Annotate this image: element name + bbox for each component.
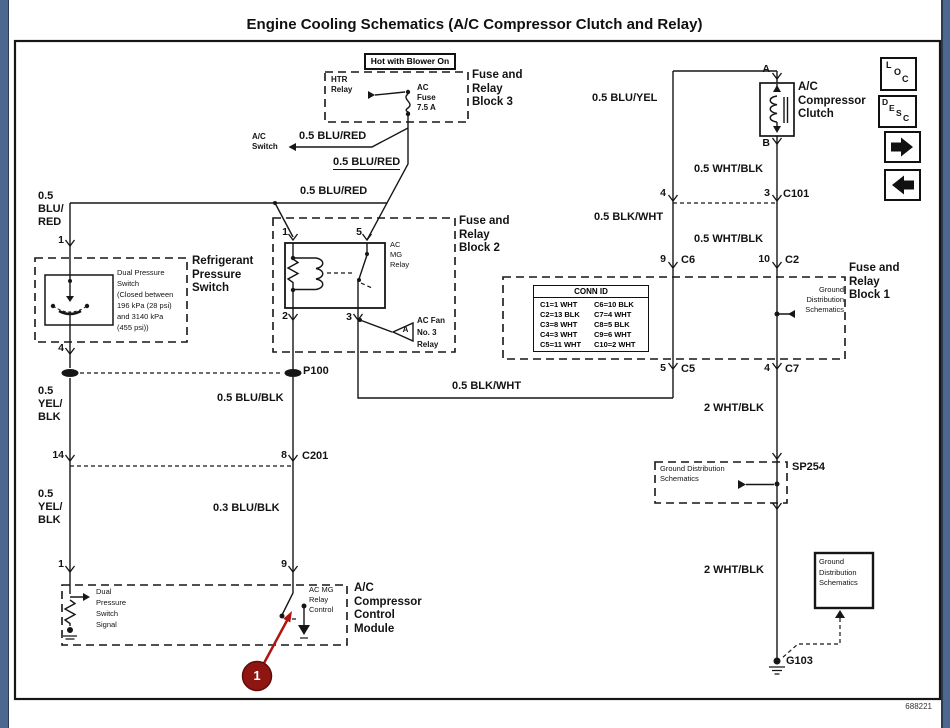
loc-button[interactable]: L O C xyxy=(880,57,917,91)
connector-g103: G103 xyxy=(786,655,813,667)
pin-4-pressure-switch: 4 xyxy=(46,342,64,354)
pressure-contact-dash xyxy=(53,306,87,312)
clutch-coil xyxy=(770,96,777,122)
dual-pressure-switch-signal-label: DualPressure SwitchSignal xyxy=(96,586,126,630)
pin-b: B xyxy=(750,137,770,149)
schematic-viewer-page: Engine Cooling Schematics (A/C Compresso… xyxy=(0,0,950,728)
ac-fuse-label: ACFuse7.5 A xyxy=(417,83,436,113)
wire-label-blu-blk-03: 0.3 BLU/BLK xyxy=(213,502,280,514)
ground-hatches xyxy=(63,636,785,674)
module-resistor xyxy=(65,600,75,626)
g103-dashed-link xyxy=(782,618,840,658)
diagram-border xyxy=(15,41,940,699)
callout-number: 1 xyxy=(249,668,265,683)
fuse-relay-block1-label: Fuse andRelayBlock 1 xyxy=(849,262,899,303)
prev-page-button[interactable] xyxy=(884,169,921,201)
right-arrow-icon xyxy=(886,133,919,161)
ac-fuse-symbol xyxy=(406,94,410,114)
pin-1-module: 1 xyxy=(46,558,64,570)
wire-label-blk-wht-right: 0.5 BLK/WHT xyxy=(594,211,663,223)
fan-relay-branch xyxy=(360,320,392,332)
htr-relay-label: HTRRelay xyxy=(331,75,352,95)
wire-label-blu-yel: 0.5 BLU/YEL xyxy=(592,92,657,104)
connector-sp254: SP254 xyxy=(792,461,825,473)
wire-label-blu-red-stack: 0.5BLU/RED xyxy=(38,190,64,229)
fuse-relay-block3-label: Fuse andRelayBlock 3 xyxy=(472,69,522,110)
clutch-bottom-arrow xyxy=(773,126,781,133)
wire-label-blu-blk: 0.5 BLU/BLK xyxy=(217,392,284,404)
htr-relay-arrow xyxy=(368,91,375,99)
wire-label-yel-blk-1: 0.5YEL/BLK xyxy=(38,385,62,424)
wire-label-wht-blk-1: 0.5 WHT/BLK xyxy=(694,163,763,175)
module-ground-symbol xyxy=(298,625,310,635)
left-arrow-icon xyxy=(886,171,919,199)
wire-label-blu-red-2: 0.5 BLU/RED xyxy=(333,156,400,170)
pin-14: 14 xyxy=(38,449,64,461)
dual-pressure-switch-description: Dual PressureSwitch (Closed between196 k… xyxy=(117,267,173,333)
wire-label-blu-red-3: 0.5 BLU/RED xyxy=(300,185,367,197)
p100-grommet-left xyxy=(62,369,79,377)
pin-9-c6: 9 xyxy=(646,253,666,265)
pin-5-c5: 5 xyxy=(646,362,666,374)
hot-with-blower-note: Hot with Blower On xyxy=(364,53,456,70)
conn-id-table: CONN ID C1=1 WHTC6=10 BLK C2=13 BLKC7=4 … xyxy=(533,285,649,352)
ac-switch-label: A/CSwitch xyxy=(252,132,278,152)
dp-signal-arrow xyxy=(83,593,90,601)
connector-c201: C201 xyxy=(302,450,328,462)
gds-box-label: GroundDistributionSchematics xyxy=(819,557,858,589)
connector-c2: C2 xyxy=(785,254,799,266)
wire-label-2wht-blk-1: 2 WHT/BLK xyxy=(704,402,764,414)
connector-c6: C6 xyxy=(681,254,695,266)
fuse-relay-block2-label: Fuse andRelayBlock 2 xyxy=(459,215,509,256)
pin-5-relay: 5 xyxy=(346,226,362,238)
wire-label-yel-blk-2: 0.5YEL/BLK xyxy=(38,488,62,527)
pin-4-c101: 4 xyxy=(646,187,666,199)
next-page-button[interactable] xyxy=(884,131,921,163)
dashed-component-boxes xyxy=(35,72,845,645)
connector-c7: C7 xyxy=(785,363,799,375)
clutch-top-arrow xyxy=(773,85,781,92)
pin-3-relay: 3 xyxy=(335,311,352,323)
pin-10-c2: 10 xyxy=(742,253,770,265)
gds-sp254-arrow xyxy=(738,480,746,489)
ac-switch-arrow xyxy=(289,143,297,151)
p100-grommet-right xyxy=(285,369,302,377)
ac-compressor-control-module-label: A/CCompressor ControlModule xyxy=(354,582,422,636)
ac-fan-relay-label: AC FanNo. 3Relay xyxy=(417,315,445,351)
refrigerant-pressure-switch-label: RefrigerantPressureSwitch xyxy=(192,255,253,296)
wire-label-blk-wht-horizontal: 0.5 BLK/WHT xyxy=(452,380,521,392)
pin-3-c101: 3 xyxy=(750,187,770,199)
pin-9-module: 9 xyxy=(267,558,287,570)
connector-c101: C101 xyxy=(783,188,809,200)
ac-mg-relay-label: ACMGRelay xyxy=(390,240,409,270)
ac-mg-relay-inner-box xyxy=(285,243,385,308)
pin-a: A xyxy=(750,63,770,75)
pressure-switch-arrow xyxy=(66,296,74,302)
ac-mg-relay-control-label: AC MGRelayControl xyxy=(309,585,334,615)
solid-component-boxes xyxy=(45,83,873,608)
gds-box-arrow xyxy=(835,610,845,618)
wire-label-blu-red-1: 0.5 BLU/RED xyxy=(299,130,366,142)
pin-4-c7: 4 xyxy=(750,362,770,374)
relay-actuation-dash xyxy=(327,273,372,288)
callout-arrowhead xyxy=(283,611,292,623)
connector-c5: C5 xyxy=(681,363,695,375)
pin-1-relay: 1 xyxy=(272,226,288,238)
wire-label-2wht-blk-2: 2 WHT/BLK xyxy=(704,564,764,576)
gds-sp254-label: Ground DistributionSchematics xyxy=(660,464,725,484)
desc-button[interactable]: D E S C xyxy=(878,95,917,128)
pin-2-relay: 2 xyxy=(272,310,288,322)
junction-dots xyxy=(51,90,781,665)
relay-coil xyxy=(316,258,323,290)
gds-block1-label: GroundDistributionSchematics xyxy=(770,285,844,315)
pin-8: 8 xyxy=(267,449,287,461)
dual-pressure-switch-inner-box xyxy=(45,275,113,325)
fan-relay-a-symbol: A xyxy=(399,325,412,335)
pin-1-pressure-switch: 1 xyxy=(46,234,64,246)
conn-id-header: CONN ID xyxy=(534,287,648,298)
connector-p100: P100 xyxy=(303,365,329,377)
wire-label-wht-blk-2: 0.5 WHT/BLK xyxy=(694,233,763,245)
ac-compressor-clutch-label: A/CCompressorClutch xyxy=(798,81,866,122)
